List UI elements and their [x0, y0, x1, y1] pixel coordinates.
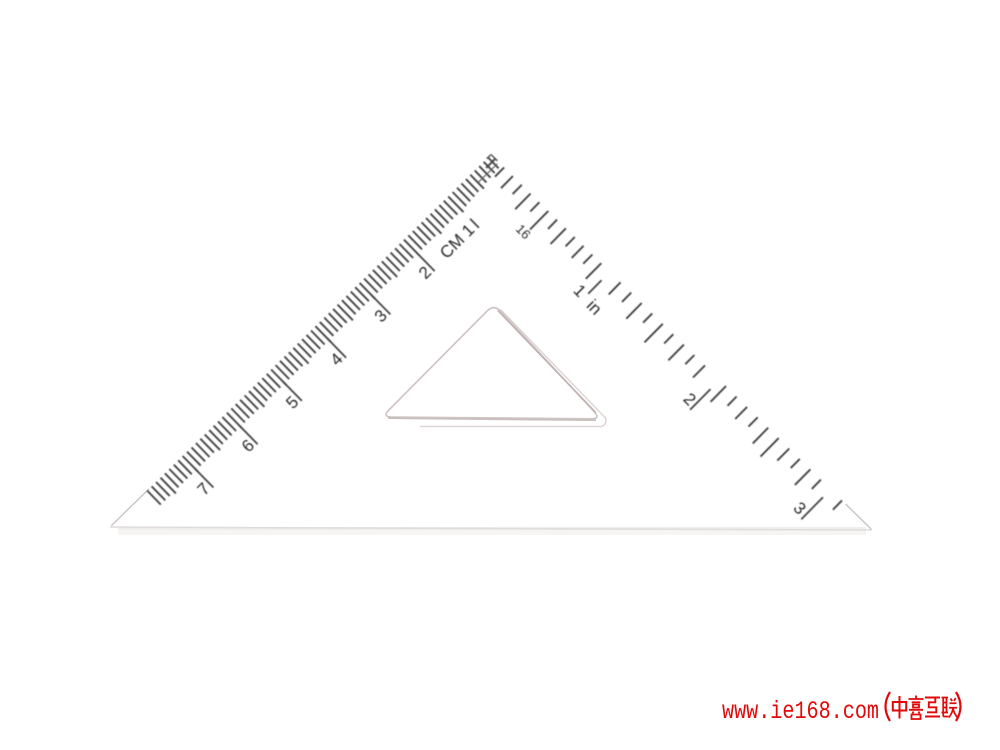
- svg-text:www.ie168.com: www.ie168.com: [722, 697, 879, 726]
